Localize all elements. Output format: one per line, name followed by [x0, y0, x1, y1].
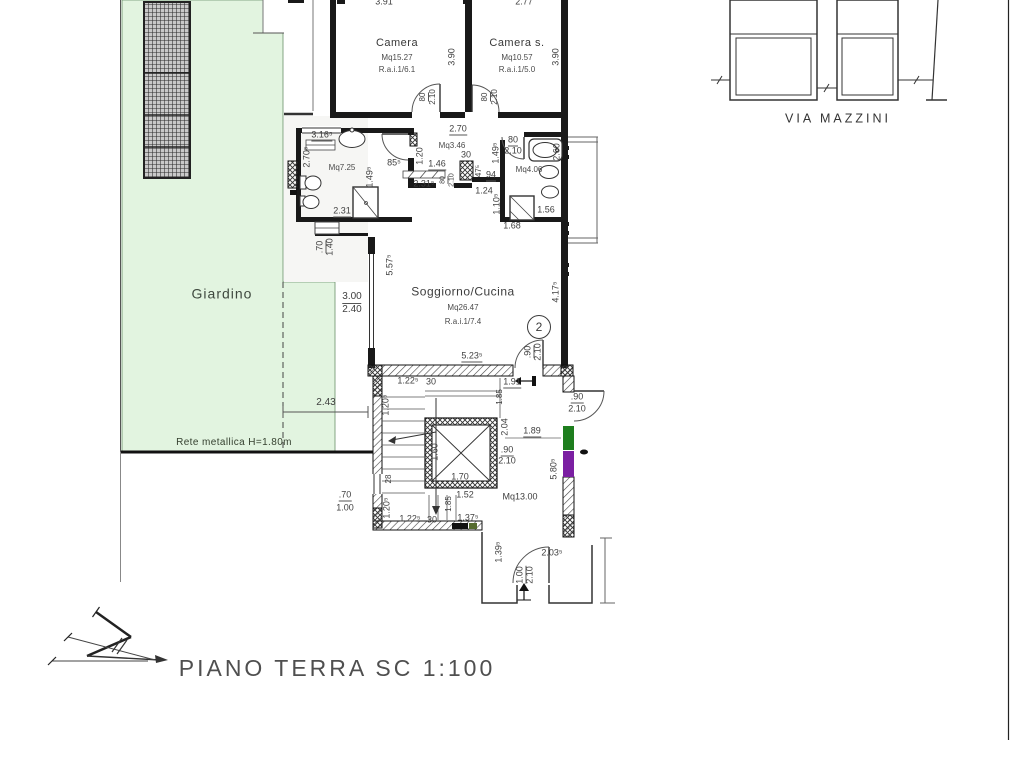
- dimension-label: 1.49⁵: [492, 142, 501, 163]
- dimension-label: 4.17⁵: [552, 281, 561, 302]
- dimension-label: 2.10: [568, 405, 586, 414]
- dimension-label: .90: [571, 393, 584, 404]
- room-area-bagno-2: Mq4.06: [516, 166, 543, 174]
- dimension-label: 30: [461, 151, 471, 160]
- dimension-label: 2.10: [526, 566, 535, 584]
- dimension-label: 3.90: [448, 48, 457, 66]
- dimension-label: 28: [385, 475, 393, 484]
- dimension-label: 2.10: [429, 89, 437, 105]
- dimension-label: 1.40: [326, 238, 335, 256]
- dimension-label: 2.10: [491, 89, 499, 105]
- dimension-label: 3.16⁵: [311, 131, 332, 142]
- dimension-label: 1.56: [537, 206, 555, 215]
- dimension-label: 30: [426, 378, 436, 387]
- dimension-label: 1.37⁵: [457, 514, 478, 523]
- dimension-label: 1.49⁵: [366, 166, 375, 187]
- dimension-label: 1.91: [503, 378, 521, 389]
- floor-plan-page: Camera Mq15.27 R.a.i.1/6.1 Camera s. Mq1…: [0, 0, 1024, 768]
- dimension-label: 85⁵: [387, 159, 401, 168]
- dimension-label: 2.31: [333, 207, 351, 218]
- dimension-label: 5.23⁵: [461, 352, 482, 363]
- dimension-label: 1.60: [431, 443, 440, 461]
- dimension-label: 1.20⁵: [383, 497, 392, 518]
- dimension-label: 2.40: [342, 305, 361, 315]
- dimension-label: 1.85: [496, 389, 504, 405]
- room-area-camera-s: Mq10.57: [501, 54, 532, 62]
- street-label: VIA MAZZINI: [785, 112, 891, 125]
- dimension-label: 3.00: [342, 292, 361, 304]
- dimension-label: 2.10: [449, 173, 456, 187]
- fence-note: Rete metallica H=1.80m: [176, 438, 292, 449]
- dimension-label: 3.91: [375, 0, 393, 7]
- room-area-bagno-1: Mq7.25: [329, 164, 356, 172]
- dimension-label: 47⁵: [475, 165, 483, 177]
- dimension-label: 2.70⁵: [303, 146, 312, 167]
- drawing-title: PIANO TERRA SC 1:100: [179, 656, 496, 680]
- dimension-label: 2.70: [449, 125, 467, 136]
- room-rai-camera-s: R.a.i.1/5.0: [499, 66, 535, 74]
- dimension-label: 94: [486, 171, 496, 182]
- dimension-label: 1.85: [445, 496, 453, 512]
- dimension-label: 1.68: [503, 222, 521, 231]
- room-rai-soggiorno: R.a.i.1/7.4: [445, 318, 481, 326]
- dimension-label: 1.22⁵: [397, 377, 418, 386]
- room-label-soggiorno: Soggiorno/Cucina: [411, 286, 514, 299]
- unit-number-badge: 2: [527, 315, 551, 339]
- garden-label: Giardino: [192, 287, 253, 302]
- dimension-label: 1.39⁵: [495, 541, 504, 562]
- room-label-camera-s: Camera s.: [489, 38, 544, 50]
- north-arrow-icon: [48, 607, 168, 665]
- dimension-label: 1.00: [336, 504, 354, 513]
- dimension-label: 2.10: [534, 343, 543, 361]
- dimension-label: 1.20⁵: [382, 394, 391, 415]
- dimension-label: 5.80⁵: [550, 458, 559, 479]
- dimension-label: 2.10: [498, 457, 516, 466]
- room-area-vano-scale: Mq13.00: [502, 492, 537, 501]
- room-rai-camera: R.a.i.1/6.1: [379, 66, 415, 74]
- dimension-label: 1.22⁵: [399, 515, 420, 524]
- dimension-label: 1.70: [451, 473, 469, 482]
- dimension-label: 1.20: [416, 147, 425, 165]
- dimension-label: 3.90: [552, 48, 561, 66]
- dimension-label: 80: [440, 176, 449, 184]
- room-label-camera: Camera: [376, 38, 418, 50]
- dimension-label: 1.46: [428, 160, 446, 171]
- dimension-label: 5.57⁵: [386, 254, 395, 275]
- dimension-label: 2.10: [504, 147, 522, 156]
- dimension-label: 2.31⁵: [413, 180, 434, 189]
- dimension-label: 2.77: [515, 0, 533, 7]
- dimension-label: 2.43: [316, 398, 335, 408]
- dimension-label: .70: [339, 491, 352, 502]
- dimension-label: 1.52: [456, 491, 474, 500]
- dimension-label: 2.60: [553, 143, 562, 161]
- dimension-label: 2.03⁵: [541, 549, 562, 558]
- dimension-label: 30: [427, 516, 437, 525]
- dimension-label: 1.24: [475, 187, 493, 196]
- dimension-label: 2.04: [501, 418, 510, 436]
- room-area-camera: Mq15.27: [381, 54, 412, 62]
- dimension-label: 1.89: [523, 427, 541, 438]
- dimension-label: 1.10⁵: [493, 193, 502, 214]
- room-area-soggiorno: Mq26.47: [447, 304, 478, 312]
